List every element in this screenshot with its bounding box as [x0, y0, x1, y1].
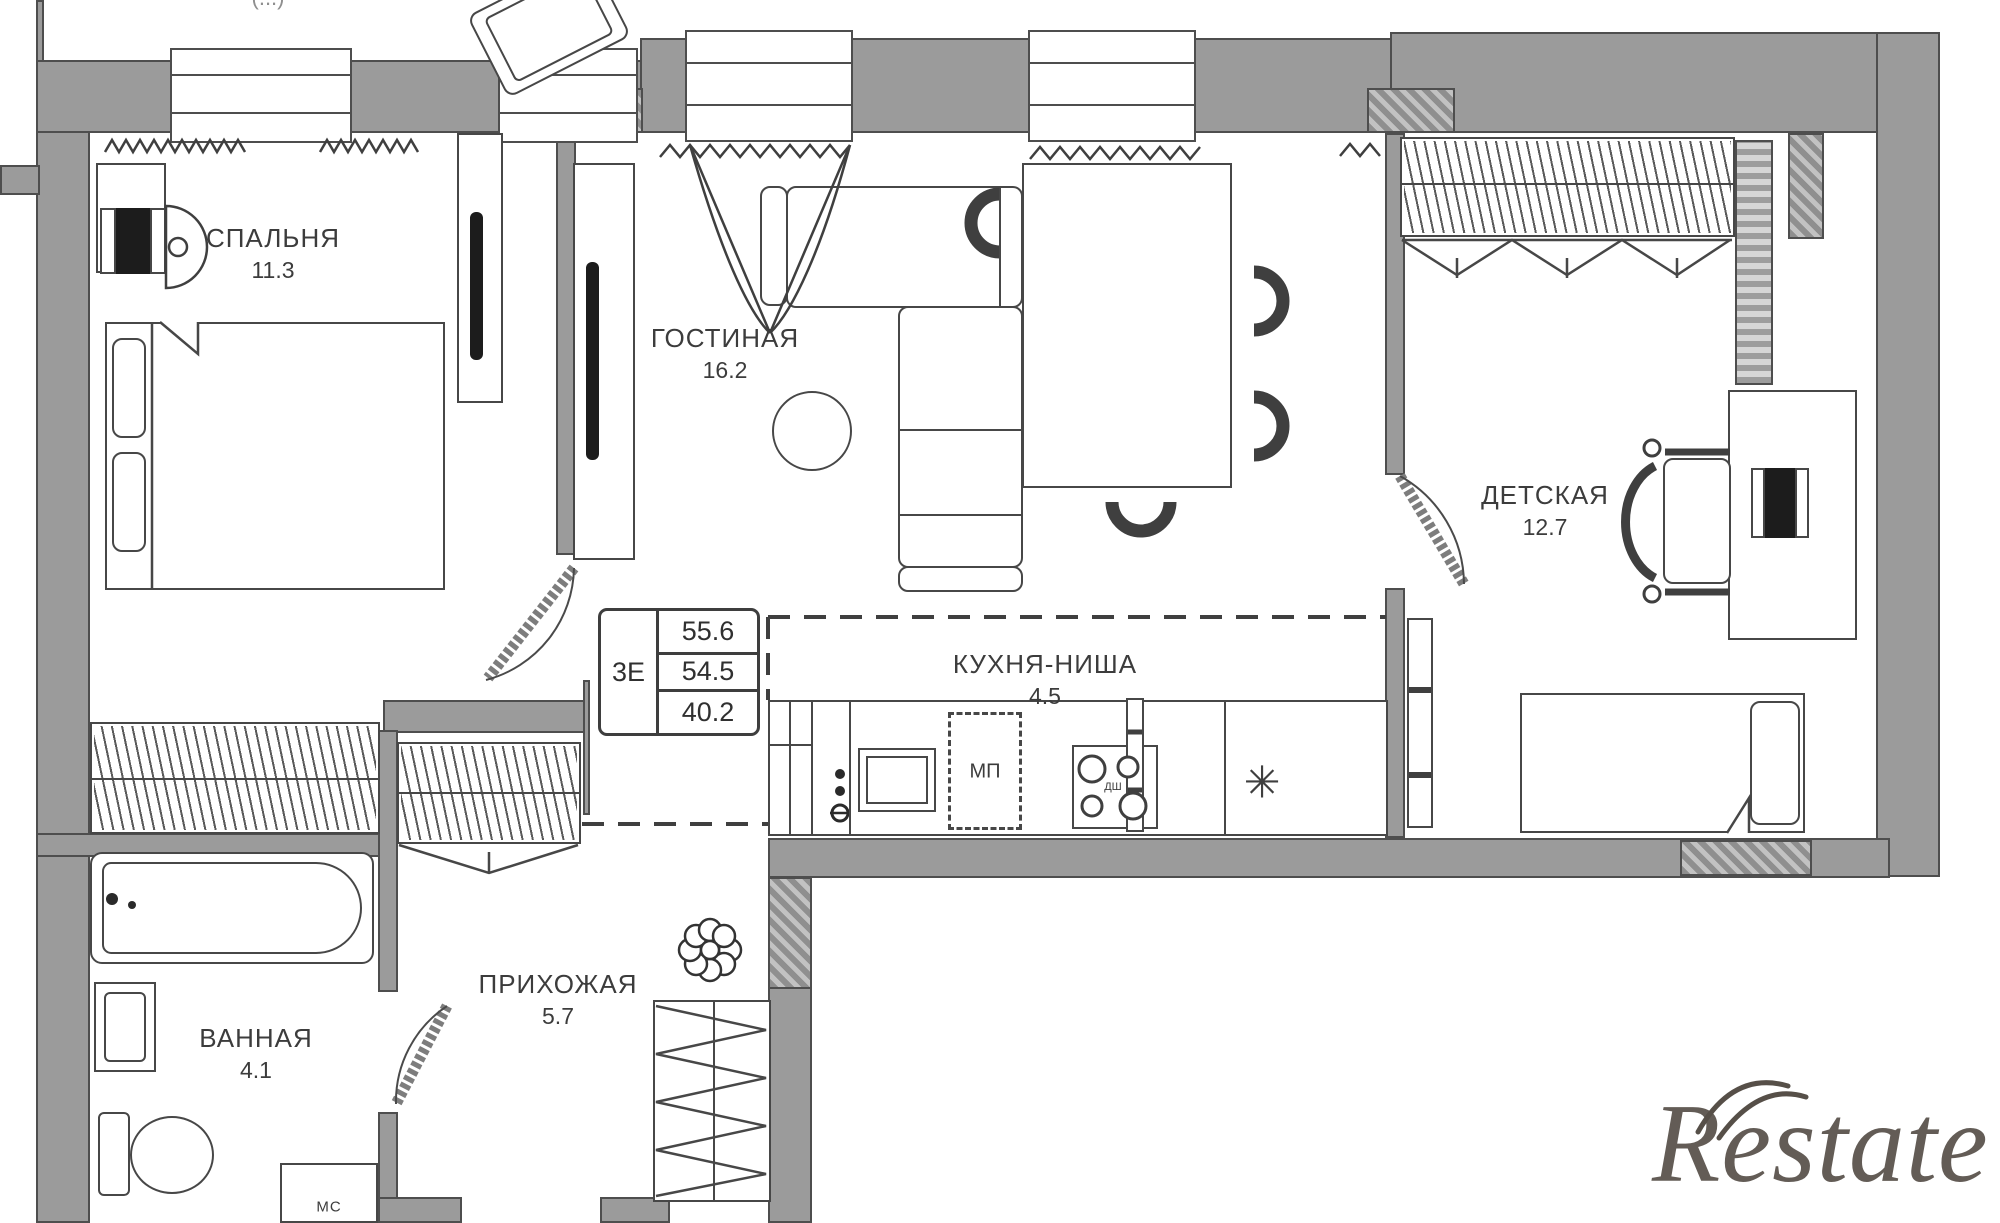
room-area: 5.7	[479, 1002, 638, 1032]
floorplan-canvas: (...) МП ДШ ✳	[0, 0, 2000, 1223]
area-reduced: 40.2	[659, 692, 757, 733]
closet-hanger-symbols	[399, 240, 1732, 873]
window-casement-swing-icon	[690, 145, 850, 333]
shoe-cabinet-zigzag	[656, 1006, 766, 1196]
radiator-zigzags	[105, 140, 1380, 159]
room-name: СПАЛЬНЯ	[206, 222, 340, 256]
bed-details	[152, 322, 1749, 833]
room-label-children: ДЕТСКАЯ 12.7	[1481, 479, 1609, 543]
room-name: ДЕТСКАЯ	[1481, 479, 1609, 513]
room-name: ПРИХОЖАЯ	[479, 968, 638, 1002]
sofa-cushion-lines	[900, 188, 1021, 515]
room-label-living: ГОСТИНАЯ 16.2	[651, 322, 799, 386]
desk-chair-arms	[1626, 440, 1730, 602]
room-label-hallway: ПРИХОЖАЯ 5.7	[479, 968, 638, 1032]
room-label-kitchen: КУХНЯ-НИША 4.5	[953, 648, 1137, 712]
area-living: 54.5	[659, 652, 757, 693]
apartment-type-label: 3Е	[601, 611, 659, 733]
bathtub-faucet-icon	[106, 893, 136, 909]
room-area: 4.5	[953, 682, 1137, 712]
restate-watermark: Restate	[1652, 1080, 2000, 1223]
room-label-bedroom: СПАЛЬНЯ 11.3	[206, 222, 340, 286]
room-area: 16.2	[651, 356, 799, 386]
bedroom-vanity-chair	[166, 206, 207, 288]
room-name: КУХНЯ-НИША	[953, 648, 1137, 682]
kitchen-linework	[770, 702, 1225, 834]
area-total: 55.6	[659, 611, 757, 652]
room-area: 4.1	[199, 1056, 313, 1086]
room-area: 12.7	[1481, 513, 1609, 543]
rack-rungs	[1128, 690, 1431, 790]
room-name: ВАННАЯ	[199, 1022, 313, 1056]
room-label-bathroom: ВАННАЯ 4.1	[199, 1022, 313, 1086]
plant-icon	[679, 919, 741, 981]
room-area: 11.3	[206, 256, 340, 286]
area-info-table: 3Е 55.6 54.5 40.2	[598, 608, 760, 736]
room-name: ГОСТИНАЯ	[651, 322, 799, 356]
dining-chairs	[971, 194, 1283, 531]
